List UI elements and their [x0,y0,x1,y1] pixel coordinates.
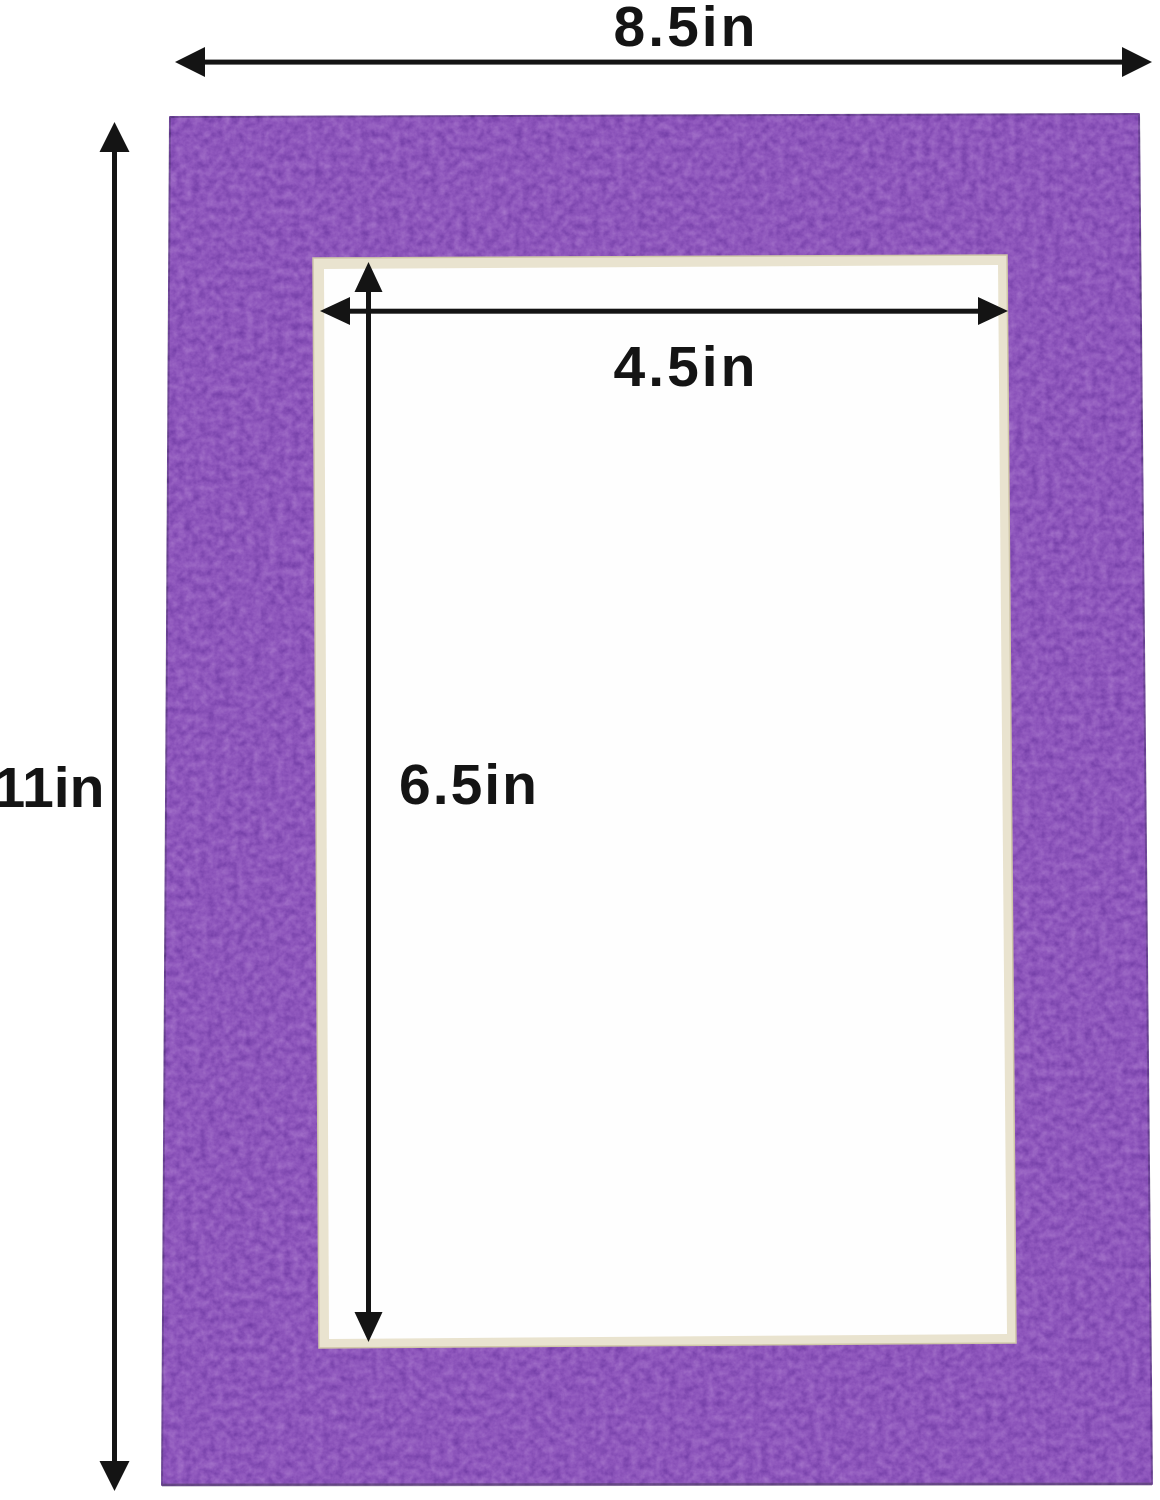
svg-text:11in: 11in [0,756,104,820]
svg-text:6.5in: 6.5in [399,753,539,817]
svg-text:8.5in: 8.5in [614,0,759,59]
svg-text:4.5in: 4.5in [614,335,759,399]
